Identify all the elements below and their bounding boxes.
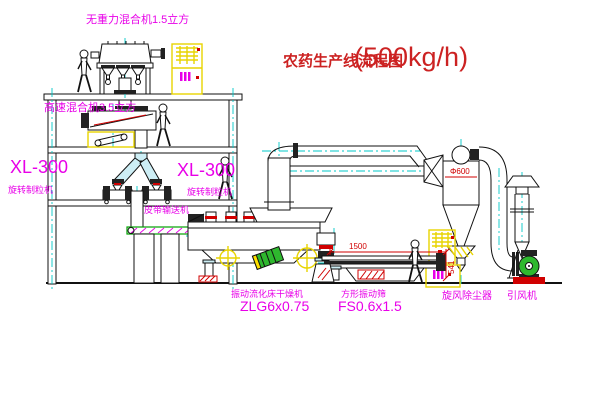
indicator-dot	[451, 236, 454, 239]
dim-sieve-length: 1500	[349, 243, 367, 251]
label-fan: 引风机	[507, 292, 537, 302]
fan-base	[513, 277, 545, 284]
process-flow-diagram: 无重力混合机1.5立方 农药生产线流程图 (500kg/h) 高速混合机3.5立…	[0, 0, 600, 403]
dim-sieve-height: 541	[448, 261, 456, 274]
dryer-right-foot	[312, 264, 334, 282]
label-granulator-right-name: 旋转制粒机	[187, 188, 232, 197]
indicator-dot	[197, 48, 200, 51]
cyclone-dust-collector	[443, 146, 479, 271]
page-title-capacity: (500kg/h)	[354, 44, 468, 71]
top-mixer	[91, 41, 165, 94]
label-sieve-model: FS0.6x1.5	[338, 299, 402, 313]
label-granulator-right-model: XL-300	[177, 161, 235, 179]
belt-drive-box	[88, 132, 134, 147]
label-cyclone: 旋风除尘器	[442, 292, 492, 302]
control-cabinet-top	[172, 44, 202, 94]
indicator-dot	[196, 76, 199, 79]
label-top-mixer: 无重力混合机1.5立方	[86, 15, 189, 26]
label-second-mixer: 高速混合机3.5立方	[44, 103, 136, 114]
label-granulator-left-model: XL-300	[10, 158, 68, 176]
exhaust-ducts	[290, 146, 443, 187]
label-belt-conveyor: 皮带输送机	[144, 206, 189, 215]
person-icon	[78, 50, 91, 92]
dryer-foot-base	[199, 276, 217, 282]
person-icon	[157, 104, 170, 146]
y-chute	[112, 153, 162, 184]
label-granulator-left-name: 旋转制粒机	[8, 186, 53, 195]
label-dryer-model: ZLG6x0.75	[240, 299, 309, 313]
discharge-chute	[131, 191, 143, 229]
dim-cyclone-diameter: Φ600	[450, 168, 470, 176]
